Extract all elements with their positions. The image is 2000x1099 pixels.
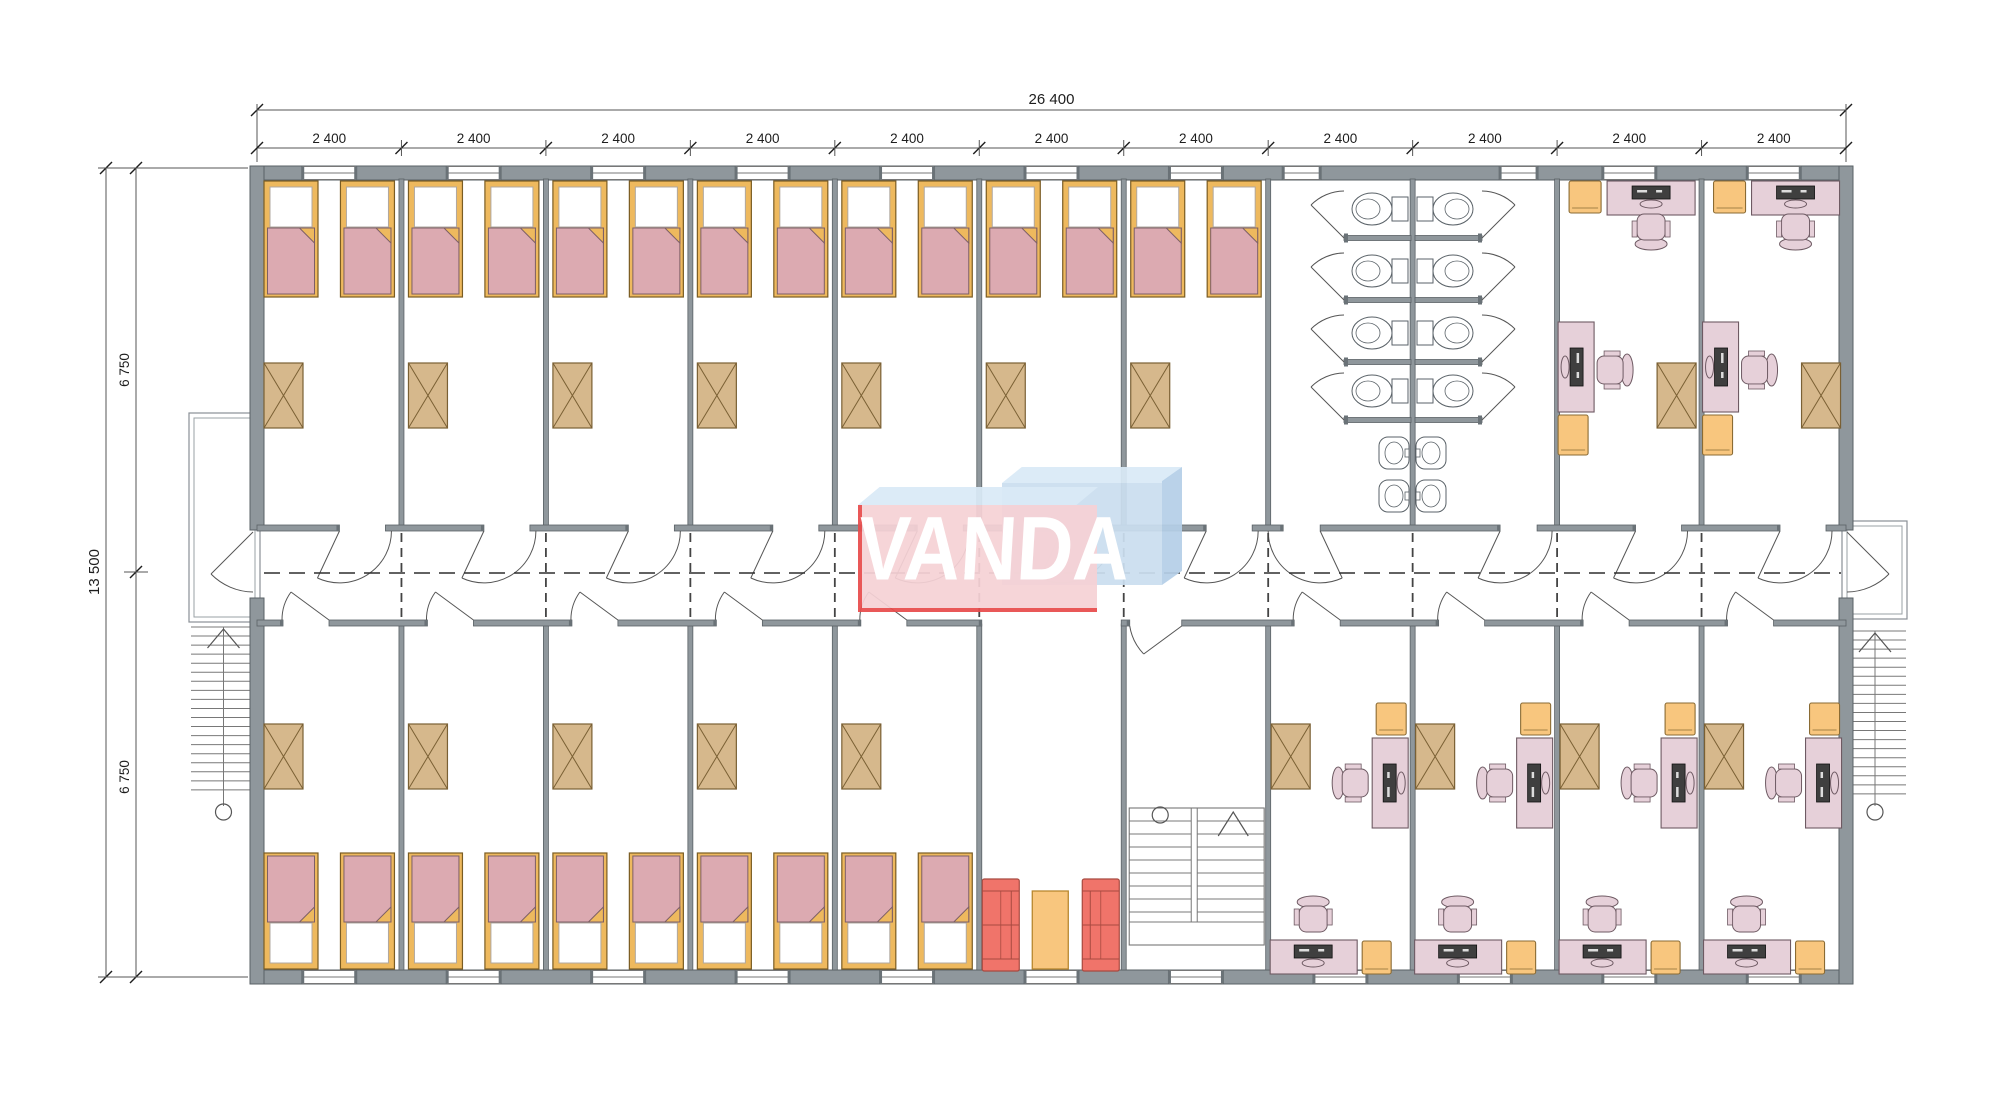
window-cap (879, 167, 882, 180)
wall-exterior-left (250, 598, 264, 984)
computer-key (1676, 772, 1679, 778)
cabinet (1558, 415, 1588, 455)
wall-end-cap (336, 525, 339, 531)
door-swing (1482, 191, 1515, 205)
chair-armrest (1472, 909, 1477, 925)
wall-end-cap (1478, 296, 1482, 305)
bed-pillow (346, 923, 388, 963)
door-leaf (724, 592, 762, 620)
entry-landing-left-inner (194, 418, 255, 617)
office-chair (1632, 214, 1670, 250)
door-swing (606, 531, 680, 583)
door-swing (1438, 592, 1447, 620)
computer-key (1721, 353, 1724, 363)
office-chair (1766, 764, 1802, 802)
dimension-label-bay: 2 400 (312, 131, 346, 146)
bed-pillow (491, 923, 533, 963)
bed-mattress (556, 856, 603, 922)
door-leaf (1311, 329, 1344, 362)
wall-partition-bottom (1410, 624, 1415, 970)
door-swing (1311, 253, 1344, 267)
wall-end-cap (280, 620, 283, 626)
sink-faucet (1405, 449, 1409, 457)
toilet-bowl (1352, 193, 1392, 225)
chair-seat (1299, 906, 1327, 932)
computer-key (1532, 787, 1535, 797)
toilet-tank (1417, 321, 1433, 345)
door-leaf (1758, 531, 1780, 578)
computer-mouse (1785, 200, 1807, 208)
wall-partition-bottom (977, 624, 982, 970)
chair-armrest (1616, 909, 1621, 925)
wall-end-cap (1127, 620, 1130, 626)
bed-pillow (346, 187, 388, 227)
bed-pillow (270, 187, 312, 227)
bed-mattress (701, 228, 748, 294)
toilet-tank (1417, 259, 1433, 283)
computer-mouse (1706, 356, 1714, 378)
door-leaf (580, 592, 618, 620)
wall-end-cap (1344, 416, 1348, 425)
wall-exterior-left (250, 166, 264, 530)
computer-mouse (1561, 356, 1569, 378)
wall-corridor-bottom (762, 620, 860, 626)
wall-end-cap (1436, 620, 1439, 626)
chair-seat (1342, 769, 1368, 797)
chair-armrest (1345, 797, 1361, 802)
door-swing (1268, 531, 1342, 583)
sink-faucet (1405, 492, 1409, 500)
computer-key (1577, 353, 1580, 363)
wall-corridor-bottom (1774, 620, 1846, 626)
computer-mouse (1397, 772, 1405, 794)
wall-partition-bottom (832, 624, 837, 970)
bed-mattress (990, 228, 1037, 294)
wall-corridor-bottom (618, 620, 716, 626)
entry-landing-left (189, 413, 260, 622)
door-swing (751, 531, 825, 583)
office-chair (1439, 896, 1477, 932)
bed-pillow (559, 923, 601, 963)
bed-mattress (1066, 228, 1113, 294)
door-swing (1582, 592, 1591, 620)
door-leaf (291, 592, 329, 620)
door-leaf (435, 592, 473, 620)
wall-end-cap (1344, 296, 1348, 305)
chair-seat (1733, 906, 1761, 932)
wall-end-cap (1344, 234, 1348, 243)
wall-end-cap (1777, 525, 1780, 531)
door-swing (860, 592, 869, 620)
window-cap (354, 971, 357, 984)
window-cap (1168, 971, 1171, 984)
computer-key (1444, 949, 1454, 952)
door-leaf (211, 532, 253, 574)
chair-armrest (1294, 909, 1299, 925)
window-cap (932, 167, 935, 180)
wall-end-cap (1478, 358, 1482, 367)
bed-mattress (1134, 228, 1181, 294)
computer-key (1299, 949, 1309, 952)
computer-mouse (1302, 959, 1324, 967)
wall-corridor-bottom (473, 620, 571, 626)
computer-key (1676, 787, 1679, 797)
bed-pillow (491, 187, 533, 227)
window-cap (1282, 167, 1285, 180)
chair-armrest (1604, 351, 1620, 356)
chair-armrest (1327, 909, 1332, 925)
bed-mattress (633, 228, 680, 294)
wall-corridor-bottom (257, 620, 283, 626)
chair-armrest (1439, 909, 1444, 925)
wall-end-cap (481, 525, 484, 531)
chair-seat (1588, 906, 1616, 932)
computer-mouse (1542, 772, 1550, 794)
door-leaf (1447, 592, 1485, 620)
chair-armrest (1490, 764, 1506, 769)
bed-mattress (845, 228, 892, 294)
door-leaf (1591, 592, 1629, 620)
door-leaf (1184, 531, 1206, 578)
door-swing (1482, 253, 1515, 267)
bed-pillow (848, 923, 890, 963)
chair-armrest (1490, 797, 1506, 802)
door-swing (1040, 531, 1114, 583)
chair-armrest (1634, 764, 1650, 769)
toilet-tank (1417, 197, 1433, 221)
bed-pillow (924, 923, 966, 963)
chair-armrest (1749, 351, 1765, 356)
bed-mattress (268, 856, 315, 922)
wall-end-cap (770, 525, 773, 531)
wall-corridor-top (1682, 525, 1780, 531)
wall-corridor-top (1108, 525, 1206, 531)
computer-mouse (1686, 772, 1694, 794)
dimension-label-bay: 2 400 (1612, 131, 1646, 146)
wall-stall-divider (1415, 418, 1482, 423)
coffee-table (1032, 891, 1068, 969)
bed-mattress (922, 856, 969, 922)
chair-armrest (1345, 764, 1361, 769)
wall-corridor-top (963, 525, 1061, 531)
office-chair (1294, 896, 1332, 932)
dimension-label-left-total: 13 500 (86, 549, 103, 595)
dimension-label-half: 6 750 (117, 353, 132, 387)
door-leaf (1311, 387, 1344, 420)
wall-partition-bottom (688, 624, 693, 970)
floor-plan-drawing: 26 4002 4002 4002 4002 4002 4002 4002 40… (0, 0, 2000, 1099)
window-cap (788, 971, 791, 984)
wall-end-cap (569, 620, 572, 626)
chair-armrest (1779, 764, 1795, 769)
wall-partition-bottom (399, 624, 404, 970)
door-swing (426, 592, 435, 620)
computer-key (1801, 190, 1807, 193)
door-swing (462, 531, 536, 583)
dimension-label-bay: 2 400 (1179, 131, 1213, 146)
window-cap (788, 167, 791, 180)
computer-key (1387, 772, 1390, 778)
wall-partition-top (1121, 179, 1126, 527)
wall-end-cap (625, 525, 628, 531)
wall-corridor-bottom (1629, 620, 1727, 626)
window-cap (1024, 971, 1027, 984)
window-cap (1654, 167, 1657, 180)
bed-pillow (414, 187, 456, 227)
chair-armrest (1777, 221, 1782, 237)
toilet-bowl (1433, 317, 1473, 349)
wall-end-cap (1280, 525, 1283, 531)
wall-end-cap (713, 620, 716, 626)
chair-armrest (1810, 221, 1815, 237)
window-cap (1536, 167, 1539, 180)
chair-seat (1597, 356, 1623, 384)
dimension-label-total: 26 400 (1029, 91, 1075, 108)
wall-end-cap (1725, 620, 1728, 626)
dimension-label-bay: 2 400 (457, 131, 491, 146)
door-leaf (1614, 531, 1636, 578)
dimension-label-bay: 2 400 (1035, 131, 1069, 146)
wall-end-cap (424, 620, 427, 626)
chair-armrest (1632, 221, 1637, 237)
toilet-tank (1417, 379, 1433, 403)
chair-armrest (1761, 909, 1766, 925)
door-swing (1311, 315, 1344, 329)
bed-pillow (703, 187, 745, 227)
computer-key (1721, 372, 1724, 378)
wall-partition-top (1266, 179, 1271, 527)
door-swing (1478, 531, 1552, 583)
door-leaf (1320, 531, 1342, 578)
door-leaf (1040, 531, 1062, 578)
bed-pillow (780, 187, 822, 227)
bed-pillow (924, 187, 966, 227)
bed-mattress (633, 856, 680, 922)
computer-key (1821, 787, 1824, 797)
bed-pillow (848, 187, 890, 227)
computer-key (1318, 949, 1324, 952)
wall-end-cap (1344, 358, 1348, 367)
toilet-tank (1392, 321, 1408, 345)
chair-seat (1637, 214, 1665, 240)
window-cap (1746, 167, 1749, 180)
bed-mattress (1211, 228, 1258, 294)
sink-faucet (1416, 492, 1420, 500)
computer-key (1821, 772, 1824, 778)
floor-plan-canvas: 26 4002 4002 4002 4002 4002 4002 4002 40… (0, 0, 2000, 1099)
toilet-tank (1392, 259, 1408, 283)
stair-start-circle (1867, 804, 1883, 820)
wall-end-cap (1291, 620, 1294, 626)
computer-mouse (1591, 959, 1613, 967)
dimension-label-bay: 2 400 (1324, 131, 1358, 146)
window-cap (1499, 167, 1502, 180)
computer-mouse (1831, 772, 1839, 794)
door-leaf (1482, 329, 1515, 362)
wall-end-cap (1478, 234, 1482, 243)
wall-end-cap (1633, 525, 1636, 531)
door-swing (317, 531, 391, 583)
bed-mattress (488, 856, 535, 922)
wall-exterior-right (1839, 166, 1853, 530)
chair-seat (1487, 769, 1513, 797)
bed-mattress (268, 228, 315, 294)
door-leaf (1311, 205, 1344, 238)
wall-stall-divider (1344, 418, 1411, 423)
dimension-label-bay: 2 400 (601, 131, 635, 146)
dimension-label-bay: 2 400 (890, 131, 924, 146)
bed-mattress (701, 856, 748, 922)
door-swing (715, 592, 724, 620)
bed-pillow (414, 923, 456, 963)
window-cap (932, 971, 935, 984)
toilet-bowl (1433, 375, 1473, 407)
chair-armrest (1665, 221, 1670, 237)
door-swing (1293, 592, 1302, 620)
window-cap (301, 971, 304, 984)
door-swing (1311, 191, 1344, 205)
office-chair (1777, 214, 1815, 250)
bed-mattress (777, 228, 824, 294)
toilet-bowl (1433, 193, 1473, 225)
computer-mouse (1736, 959, 1758, 967)
computer-key (1532, 772, 1535, 778)
dimension-label-half: 6 750 (117, 760, 132, 794)
wall-stall-divider (1415, 298, 1482, 303)
bed-pillow (635, 187, 677, 227)
stair-up-arrow (1218, 812, 1248, 836)
office-chair (1583, 896, 1621, 932)
computer-key (1752, 949, 1758, 952)
door-leaf (1144, 626, 1182, 654)
chair-armrest (1779, 797, 1795, 802)
bed-mattress (412, 856, 459, 922)
computer-key (1637, 190, 1647, 193)
bed-pillow (780, 923, 822, 963)
bed-mattress (344, 228, 391, 294)
wall-corridor-bottom (1182, 620, 1294, 626)
wall-stall-divider (1344, 360, 1411, 365)
computer-key (1607, 949, 1613, 952)
window-cap (1077, 971, 1080, 984)
window-cap (735, 167, 738, 180)
toilet-bowl (1352, 375, 1392, 407)
wall-corridor-bottom (329, 620, 427, 626)
toilet-bowl (1352, 255, 1392, 287)
window-cap (735, 971, 738, 984)
window-cap (590, 167, 593, 180)
computer-mouse (1447, 959, 1469, 967)
door-swing (1614, 531, 1688, 583)
wall-partition-bottom (1555, 624, 1560, 970)
wall-end-cap (979, 620, 982, 626)
bed-mattress (922, 228, 969, 294)
bed-pillow (1213, 187, 1255, 227)
computer-key (1782, 190, 1792, 193)
window-cap (590, 971, 593, 984)
wall-end-cap (1059, 525, 1062, 531)
wall-corridor-top (1537, 525, 1635, 531)
chair-seat (1631, 769, 1657, 797)
office-chair (1621, 764, 1657, 802)
wall-partition-bottom (1266, 624, 1271, 970)
dimension-label-bay: 2 400 (1468, 131, 1502, 146)
wall-partition-top (832, 179, 837, 527)
sink-faucet (1416, 449, 1420, 457)
office-chair (1742, 351, 1778, 389)
door-leaf (869, 592, 907, 620)
window-cap (354, 167, 357, 180)
dimension-label-bay: 2 400 (746, 131, 780, 146)
office-chair (1597, 351, 1633, 389)
window-cap (1077, 167, 1080, 180)
door-leaf (1478, 531, 1500, 578)
chair-seat (1742, 356, 1768, 384)
door-leaf (751, 531, 773, 578)
wall-end-cap (858, 620, 861, 626)
cabinet (1703, 415, 1733, 455)
computer-key (1733, 949, 1743, 952)
computer-key (1588, 949, 1598, 952)
wall-partition-bottom (543, 624, 548, 970)
bed-mattress (777, 856, 824, 922)
computer-mouse (1640, 200, 1662, 208)
window-cap (499, 167, 502, 180)
wall-corridor-top (385, 525, 483, 531)
wall-partition-top (1410, 179, 1415, 527)
dimension-label-bay: 2 400 (1757, 131, 1791, 146)
window-cap (301, 167, 304, 180)
bed-pillow (635, 923, 677, 963)
door-swing (1482, 315, 1515, 329)
computer-key (1387, 787, 1390, 797)
wall-stall-divider (1344, 236, 1411, 241)
bed-mattress (344, 856, 391, 922)
bed-pillow (703, 923, 745, 963)
wall-corridor-top (1252, 525, 1283, 531)
door-leaf (462, 531, 484, 578)
chair-armrest (1728, 909, 1733, 925)
wall-stall-divider (1415, 360, 1482, 365)
window-cap (643, 971, 646, 984)
wall-end-cap (1478, 416, 1482, 425)
door-leaf (1482, 387, 1515, 420)
door-leaf (1482, 267, 1515, 300)
door-leaf (1482, 205, 1515, 238)
door-leaf (317, 531, 339, 578)
door-leaf (1311, 267, 1344, 300)
stair-start-circle (216, 804, 232, 820)
door-swing (1847, 574, 1889, 592)
bed-pillow (1069, 187, 1111, 227)
wall-corridor-top (819, 525, 917, 531)
door-swing (1727, 592, 1736, 620)
wall-stall-divider (1344, 298, 1411, 303)
door-swing (1311, 373, 1344, 387)
window-cap (446, 971, 449, 984)
wall-partition-top (543, 179, 548, 527)
window-cap (1168, 167, 1171, 180)
wall-corridor-bottom (1340, 620, 1438, 626)
door-swing (571, 592, 580, 620)
door-leaf (1847, 532, 1889, 574)
door-leaf (606, 531, 628, 578)
door-leaf (1302, 592, 1340, 620)
office-chair (1332, 764, 1368, 802)
wall-end-cap (1580, 620, 1583, 626)
stair-rail (1191, 808, 1197, 922)
wall-partition-top (688, 179, 693, 527)
